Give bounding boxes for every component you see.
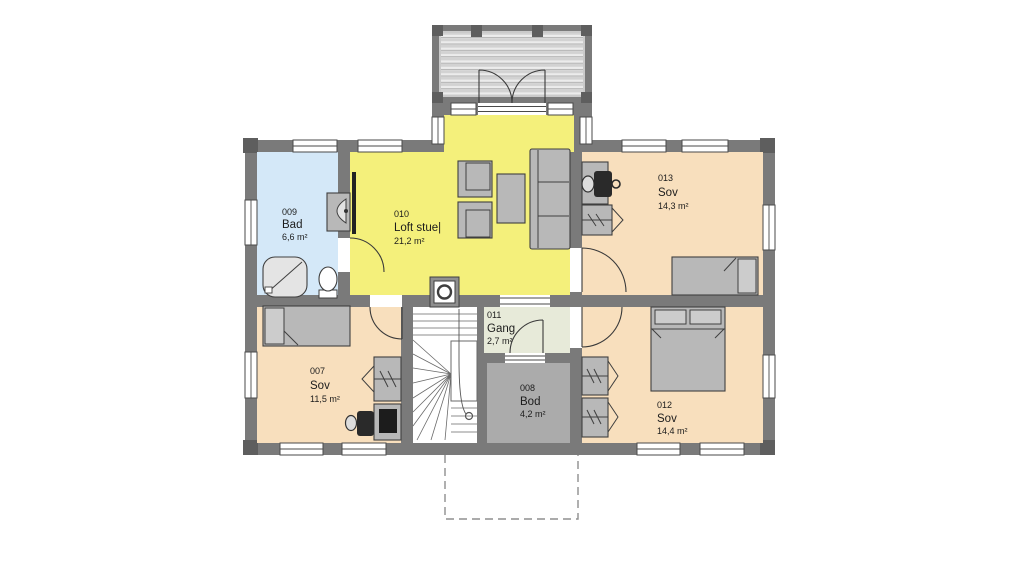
room-area: 14,3 m²: [658, 201, 689, 211]
window: [293, 140, 337, 152]
window: [548, 103, 573, 115]
bod-door-opening: [505, 353, 545, 363]
sofa: [530, 149, 570, 249]
room-area: 14,4 m²: [657, 426, 688, 436]
floor-plan-canvas: 009 Bad 6,6 m² 010 Loft stue| 21,2 m² 01…: [0, 0, 1024, 576]
wall-mid: [245, 295, 370, 307]
bad-door-opening: [338, 238, 350, 272]
window: [451, 103, 476, 115]
desk-monitor: [379, 409, 397, 433]
coffee-table: [497, 174, 525, 223]
room-number: 010: [394, 209, 409, 219]
room-name: Bod: [520, 396, 540, 408]
office-chair-back: [346, 416, 357, 431]
toilet-bowl: [319, 267, 337, 291]
room-name: Sov: [657, 413, 677, 425]
wall-segment: [401, 307, 413, 443]
balcony-post: [471, 25, 482, 37]
room-area: 11,5 m²: [310, 394, 340, 404]
room-name: Bad: [282, 219, 302, 231]
pillow: [265, 308, 284, 344]
office-chair: [594, 171, 612, 197]
floor-plan-drawing: 009 Bad 6,6 m² 010 Loft stue| 21,2 m² 01…: [0, 0, 1024, 576]
wall-013-012: [570, 295, 775, 307]
window: [700, 443, 744, 455]
window: [682, 140, 728, 152]
window: [580, 117, 592, 144]
desk-lamp: [582, 176, 594, 192]
sov-012-door-opening: [570, 307, 582, 348]
window: [763, 205, 775, 250]
room-number: 012: [657, 400, 672, 410]
wall-segment: [338, 272, 350, 295]
balcony-post: [581, 25, 592, 36]
bed: [672, 257, 758, 295]
bed: [263, 306, 350, 346]
wall-segment: [477, 307, 484, 353]
room-area: 6,6 m²: [282, 232, 308, 242]
balcony-decking: [441, 33, 583, 95]
balcony-post: [432, 25, 443, 36]
porch-outline: [445, 455, 578, 519]
wall-segment: [570, 292, 582, 307]
window: [763, 355, 775, 398]
window: [622, 140, 666, 152]
wall-top-left: [245, 140, 444, 152]
room-name: Sov: [658, 187, 678, 199]
corner-post: [243, 138, 258, 153]
pillow: [655, 310, 686, 324]
window: [245, 200, 257, 245]
chimney: [430, 277, 459, 307]
double-bed: [651, 307, 725, 391]
room-name: Loft stue|: [394, 222, 441, 234]
room-area: 2,7 m²: [487, 336, 513, 346]
tv: [352, 172, 356, 234]
room-number: 009: [282, 207, 297, 217]
room-number: 013: [658, 173, 673, 183]
window: [245, 352, 257, 398]
window: [637, 443, 680, 455]
wall-segment: [570, 152, 582, 248]
wall-segment: [477, 353, 487, 443]
window: [358, 140, 402, 152]
corner-post: [243, 440, 258, 455]
room-name: Sov: [310, 380, 330, 392]
balcony-post: [581, 92, 592, 103]
sov-013-door-opening: [570, 248, 582, 292]
stair-void: [451, 341, 477, 401]
room-loft-stue-bump-floor: [444, 115, 574, 152]
armchair: [458, 161, 492, 197]
shower-drain: [265, 287, 272, 293]
pillow: [690, 310, 721, 324]
office-chair: [357, 411, 374, 436]
window: [432, 117, 444, 144]
corner-post: [760, 138, 775, 153]
sov-007-door-opening: [370, 295, 402, 307]
window: [280, 443, 323, 455]
room-number: 008: [520, 383, 535, 393]
wall-top-right: [580, 140, 775, 152]
room-area: 4,2 m²: [520, 409, 546, 419]
pillow: [738, 259, 756, 293]
armchair: [458, 202, 492, 238]
balcony-post: [432, 92, 443, 103]
room-name: Gang: [487, 323, 515, 335]
room-area: 21,2 m²: [394, 236, 425, 246]
wall-mid: [550, 295, 570, 307]
wall-bottom: [245, 443, 775, 455]
gang-opening: [500, 295, 550, 307]
sink-faucet: [344, 209, 348, 213]
room-number: 007: [310, 366, 325, 376]
window: [342, 443, 386, 455]
balcony-door-opening: [478, 103, 546, 115]
balcony: [432, 25, 592, 103]
balcony-post: [532, 25, 543, 37]
room-number: 011: [487, 310, 501, 320]
wall-segment: [545, 353, 582, 363]
